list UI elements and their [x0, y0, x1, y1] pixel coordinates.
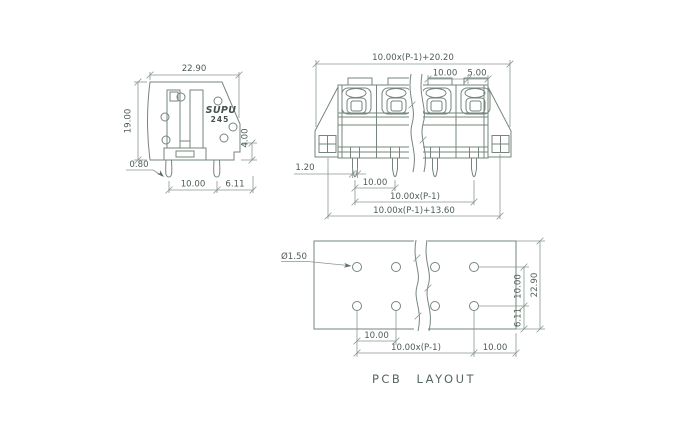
leader-arrow-hole-diameter [344, 263, 352, 269]
dim-front-mount-span: 10.00x(P-1)+13.60 [373, 206, 455, 216]
dim-front-pin-span: 10.00x(P-1) [390, 192, 440, 202]
leader-arrow-pin-thickness [157, 170, 166, 179]
solder-pin-left [166, 160, 172, 177]
dim-front-pole-pitch: 10.00 [433, 69, 458, 79]
dim-side-pin-thickness: 0.80 [129, 160, 148, 170]
mount-ear-left [319, 136, 336, 153]
dim-pcb-hole-pitch: 10.00 [364, 331, 389, 341]
dim-side-height: 19.00 [124, 109, 134, 134]
dim-pcb-row-spacing: 10.00 [514, 274, 524, 299]
dim-pcb-hole-diameter: Ø1.50 [281, 251, 307, 262]
screw-terminal-1 [342, 88, 371, 114]
dim-side-pin-edge: 6.11 [225, 180, 244, 190]
dim-pcb-hole-span: 10.00x(P-1) [391, 343, 441, 353]
screw-terminal-4 [461, 88, 490, 114]
dim-front-pin-pitch: 10.00 [363, 178, 388, 188]
pcb-dimensions [281, 238, 545, 357]
front-view-break [409, 73, 427, 172]
dim-pcb-bottom-edge: 6.11 [514, 308, 524, 327]
dim-pcb-right-edge: 10.00 [483, 343, 508, 353]
dim-side-width: 22.90 [182, 64, 207, 74]
dim-front-end-margin: 5.00 [467, 69, 486, 79]
pcb-layout-view: Ø1.50 10.00 22.90 6.11 10.00 10.00x(P-1)… [281, 238, 545, 357]
dim-front-overall-width: 10.00x(P-1)+20.20 [372, 53, 454, 63]
pcb-break [414, 239, 432, 331]
dim-side-pin-pitch: 10.00 [181, 180, 206, 190]
terminal-block-drawing: SUPU 245 22.90 19.00 0.80 10.00 6.11 4.0… [0, 0, 680, 440]
side-view: SUPU 245 22.90 19.00 0.80 10.00 6.11 4.0… [124, 64, 258, 193]
mount-ear-right [492, 136, 509, 153]
model-number: 245 [211, 115, 230, 124]
drawing-caption: PCB LAYOUT [372, 372, 476, 386]
dim-side-standoff: 4.00 [241, 128, 251, 147]
front-view: 10.00x(P-1)+20.20 10.00 5.00 1.20 10.00 … [294, 53, 513, 219]
screw-terminal-2 [382, 88, 411, 114]
dim-pcb-board-height: 22.90 [530, 273, 540, 298]
solder-pin-right [214, 160, 220, 177]
side-view-body [148, 82, 241, 177]
screw-terminal-3 [422, 88, 451, 114]
dim-front-pin-width: 1.20 [295, 163, 314, 173]
datasheet-drawing-page: SUPU 245 22.90 19.00 0.80 10.00 6.11 4.0… [0, 0, 680, 440]
